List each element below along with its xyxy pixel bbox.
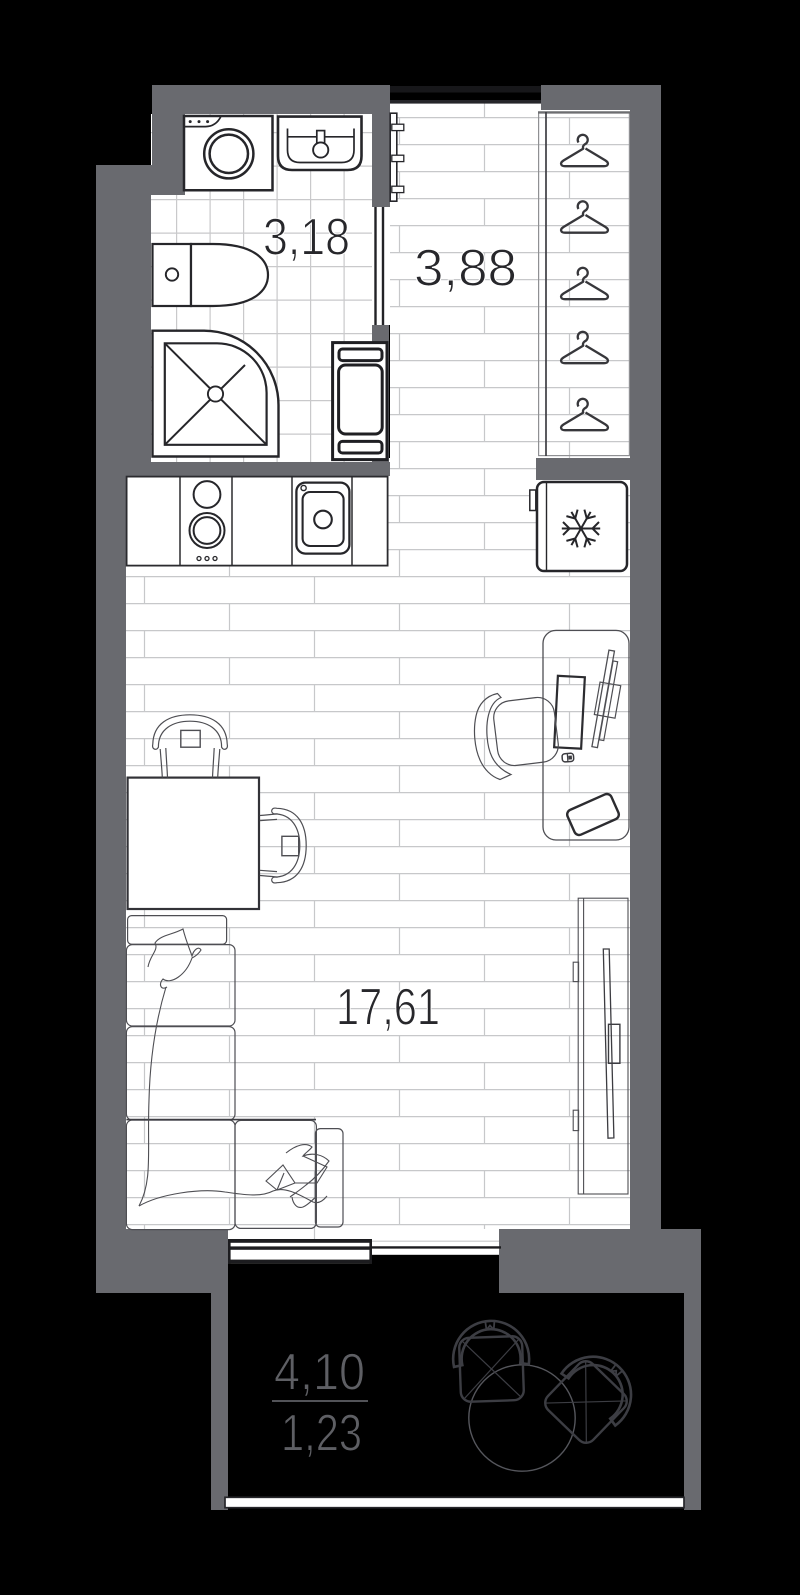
svg-text:17,61: 17,61 xyxy=(336,979,440,1037)
svg-text:3,88: 3,88 xyxy=(414,240,517,298)
svg-text:4,10: 4,10 xyxy=(274,1344,365,1402)
svg-text:3,18: 3,18 xyxy=(263,209,350,267)
svg-text:1,23: 1,23 xyxy=(281,1405,362,1463)
